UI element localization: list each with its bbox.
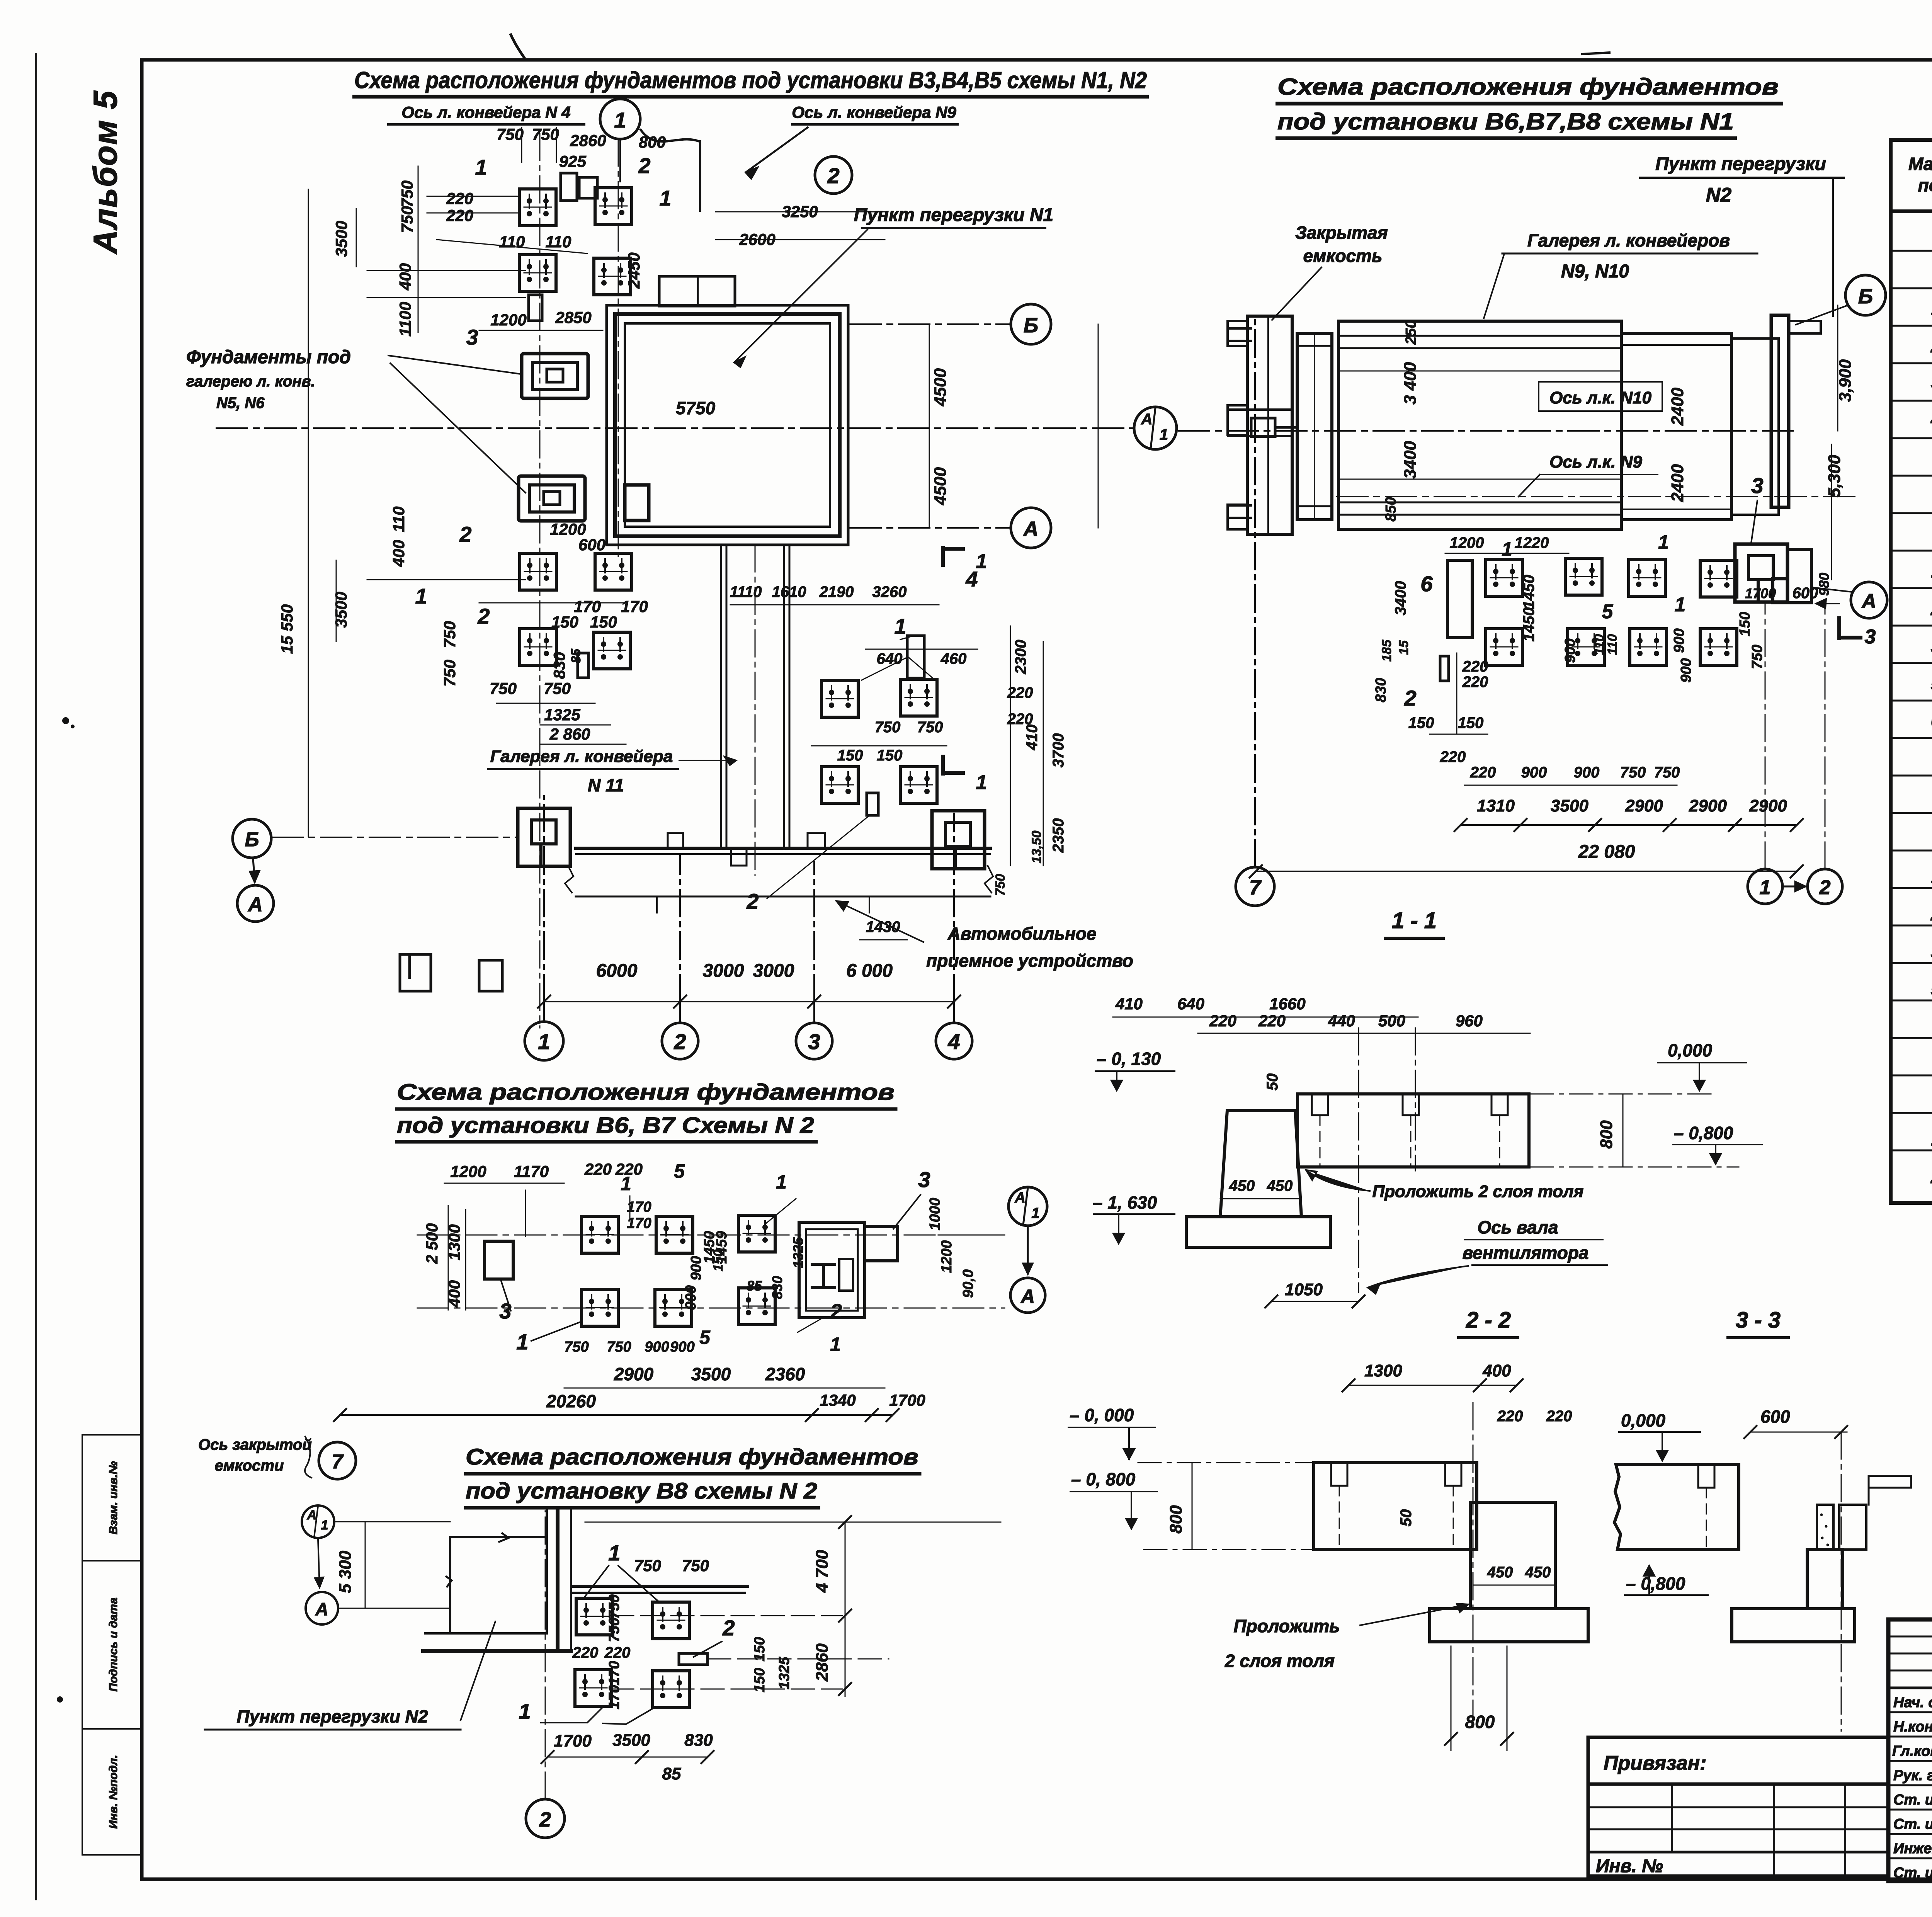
svg-text:2: 2 [539,1808,551,1831]
svg-text:поз.: поз. [1918,175,1932,195]
svg-text:450: 450 [1229,1177,1255,1194]
svg-text:750: 750 [993,874,1008,896]
svg-text:N5, N6: N5, N6 [216,395,265,412]
svg-text:1310: 1310 [1477,796,1515,815]
svg-text:750: 750 [532,125,559,143]
svg-text:1170: 1170 [514,1162,549,1180]
svg-text:6: 6 [1420,572,1433,596]
svg-text:1: 1 [1675,594,1686,616]
svg-text:640: 640 [1177,995,1204,1013]
svg-text:6 000: 6 000 [846,961,893,981]
svg-text:150: 150 [752,1637,768,1661]
svg-text:1700: 1700 [1745,585,1776,601]
svg-text:Инженер: Инженер [1893,1840,1932,1857]
svg-text:110: 110 [1605,634,1620,655]
svg-text:1: 1 [830,1334,841,1355]
svg-text:1325: 1325 [790,1237,806,1268]
svg-text:1050: 1050 [1285,1280,1323,1299]
svg-text:750: 750 [497,125,524,143]
svg-text:1: 1 [1760,876,1771,899]
svg-text:1: 1 [1931,299,1932,319]
svg-text:1660: 1660 [1269,995,1305,1013]
svg-text:Галерея л. конвейеров: Галерея л. конвейеров [1527,230,1730,250]
svg-text:85: 85 [662,1764,681,1783]
svg-text:Инв. №: Инв. № [1596,1856,1663,1876]
svg-text:110: 110 [389,507,408,532]
svg-text:– 0, 800: – 0, 800 [1071,1469,1136,1489]
svg-text:220: 220 [446,189,473,208]
svg-text:– 0, 000: – 0, 000 [1070,1405,1134,1425]
svg-text:750: 750 [917,719,943,736]
svg-text:5750: 5750 [676,398,716,418]
svg-text:3000: 3000 [753,961,794,981]
svg-text:1: 1 [1160,426,1168,443]
svg-text:170: 170 [627,1215,651,1232]
svg-text:– 0,800: – 0,800 [1674,1123,1733,1143]
svg-text:450: 450 [1267,1177,1293,1194]
svg-text:3,900: 3,900 [1836,359,1855,402]
svg-text:4: 4 [1930,410,1932,430]
svg-text:2400: 2400 [1668,464,1687,502]
svg-text:220: 220 [1497,1408,1523,1425]
svg-text:3000: 3000 [703,961,744,981]
svg-text:N 11: N 11 [588,775,624,795]
svg-text:1: 1 [608,1541,620,1565]
svg-text:3400: 3400 [1392,581,1409,616]
svg-text:2900: 2900 [1689,796,1727,815]
svg-text:Б: Б [245,828,259,851]
svg-text:А: А [1023,517,1039,541]
svg-text:750: 750 [606,1618,622,1642]
svg-text:Б: Б [1024,314,1038,337]
svg-text:830: 830 [1373,678,1389,702]
svg-text:185: 185 [1379,640,1394,662]
svg-text:900: 900 [1678,658,1694,682]
svg-text:220: 220 [1462,658,1488,675]
svg-text:1: 1 [1931,1129,1932,1150]
svg-text:1: 1 [621,1173,631,1194]
svg-text:900: 900 [683,1285,699,1310]
svg-text:2: 2 [827,163,839,188]
svg-text:1220: 1220 [1515,534,1549,551]
svg-text:Ось вала: Ось вала [1478,1217,1558,1237]
svg-text:А: А [307,1508,317,1522]
svg-text:110: 110 [499,233,525,251]
svg-text:5: 5 [699,1327,711,1348]
svg-text:150: 150 [1408,714,1434,731]
svg-text:1450: 1450 [1520,575,1537,609]
svg-text:900: 900 [1521,764,1547,781]
svg-text:3: 3 [466,325,478,349]
svg-text:2850: 2850 [555,308,591,327]
svg-text:2350: 2350 [1050,818,1067,853]
svg-text:Пункт перегрузки: Пункт перегрузки [1655,154,1826,174]
svg-text:13,50: 13,50 [1029,830,1044,863]
svg-text:А: А [1020,1286,1035,1307]
svg-text:Схема расположения фундаментов: Схема расположения фундаментов под устан… [354,67,1147,93]
svg-text:Пункт перегрузки N2: Пункт перегрузки N2 [237,1706,428,1726]
svg-text:750: 750 [544,679,571,697]
svg-text:2900: 2900 [1749,796,1787,815]
svg-text:3500: 3500 [1551,796,1588,815]
svg-text:3: 3 [808,1029,820,1054]
svg-text:2360: 2360 [765,1364,805,1384]
svg-text:440: 440 [1328,1012,1355,1030]
svg-text:Ст. инж.: Ст. инж. [1893,1792,1932,1808]
svg-text:5: 5 [1602,600,1614,623]
svg-text:1: 1 [475,155,487,179]
svg-text:1: 1 [519,1699,531,1723]
svg-text:800: 800 [1597,1120,1616,1149]
svg-text:А: А [1141,411,1153,428]
svg-text:Ось л. конвейера N 4: Ось л. конвейера N 4 [401,103,570,121]
svg-text:150: 150 [877,747,903,764]
svg-text:980: 980 [1816,573,1832,596]
svg-text:220: 220 [1440,748,1466,765]
svg-text:Ось закрытой: Ось закрытой [198,1436,312,1453]
svg-text:1100: 1100 [396,302,414,337]
svg-text:2 - 2: 2 - 2 [1466,1308,1511,1333]
svg-text:2: 2 [1930,336,1932,357]
svg-text:3: 3 [499,1299,511,1323]
svg-text:400: 400 [389,540,408,567]
svg-text:1325: 1325 [544,706,580,724]
svg-text:приемное устройство: приемное устройство [926,951,1133,971]
svg-text:емкость: емкость [1303,246,1383,266]
svg-text:2900: 2900 [1625,796,1663,815]
svg-text:220: 220 [1546,1408,1572,1425]
svg-text:220: 220 [604,1644,631,1661]
svg-text:1: 1 [776,1171,787,1193]
svg-text:900: 900 [645,1339,669,1355]
svg-text:Н.контр.: Н.контр. [1893,1719,1932,1735]
svg-text:А: А [315,1599,328,1619]
svg-text:1000: 1000 [927,1198,943,1231]
svg-text:2: 2 [1930,1167,1932,1187]
svg-text:1: 1 [894,614,906,638]
svg-text:1300: 1300 [1364,1361,1402,1380]
svg-text:3 400: 3 400 [1401,362,1420,405]
svg-text:500: 500 [1378,1012,1405,1030]
svg-text:Ст. инж.: Ст. инж. [1893,1865,1932,1881]
svg-text:3: 3 [1931,942,1932,962]
svg-text:2300: 2300 [1012,640,1029,675]
svg-text:3 - 3: 3 - 3 [1736,1308,1781,1333]
svg-text:3260: 3260 [872,583,907,600]
svg-text:925: 925 [559,152,587,170]
svg-text:вентилятора: вентилятора [1463,1243,1589,1263]
svg-text:А: А [1861,590,1876,612]
svg-text:Ось л.к. N10: Ось л.к. N10 [1549,388,1652,407]
svg-text:85: 85 [747,1278,762,1294]
svg-text:750: 750 [875,719,901,736]
svg-text:емкости: емкости [215,1457,284,1474]
svg-text:220: 220 [446,206,473,225]
svg-text:150: 150 [1737,612,1753,636]
svg-text:2860: 2860 [813,1643,832,1682]
svg-text:20260: 20260 [546,1391,596,1411]
svg-text:1: 1 [1658,531,1669,553]
svg-text:А: А [247,893,263,916]
svg-text:220: 220 [1209,1012,1236,1030]
svg-text:Проложить: Проложить [1234,1616,1340,1636]
svg-text:750: 750 [1620,764,1646,781]
svg-text:900: 900 [1562,638,1578,663]
svg-text:Б: Б [1858,285,1873,308]
svg-text:900: 900 [670,1339,694,1355]
svg-text:850: 850 [1383,497,1399,521]
svg-text:1: 1 [321,1518,328,1533]
svg-text:2: 2 [746,889,759,913]
svg-text:Закрытая: Закрытая [1295,223,1388,243]
svg-text:15 550: 15 550 [278,604,296,654]
svg-text:Нач. отд.: Нач. отд. [1893,1694,1932,1711]
svg-text:Рук. гр.: Рук. гр. [1893,1767,1932,1784]
svg-text:– 1, 630: – 1, 630 [1093,1192,1157,1213]
svg-text:2 860: 2 860 [549,725,590,743]
svg-text:2: 2 [673,1029,686,1054]
svg-text:5: 5 [674,1160,685,1182]
svg-text:220: 220 [1462,674,1488,691]
svg-text:2: 2 [1819,876,1831,899]
svg-text:0,000: 0,000 [1621,1410,1666,1431]
svg-text:2: 2 [459,522,471,546]
svg-text:1: 1 [1931,867,1932,887]
svg-text:3: 3 [1751,473,1763,498]
svg-text:15: 15 [1396,640,1411,655]
svg-text:1200: 1200 [490,311,526,329]
svg-text:А: А [1014,1190,1025,1206]
svg-text:3: 3 [1931,372,1932,393]
svg-text:800: 800 [1167,1505,1185,1534]
svg-text:1700: 1700 [889,1391,925,1409]
svg-text:4: 4 [947,1029,960,1054]
svg-text:Взам. инв.№: Взам. инв.№ [107,1461,120,1534]
svg-text:50: 50 [1264,1073,1281,1091]
svg-text:Схема расположения фундаментов: Схема расположения фундаментов [466,1444,918,1470]
svg-text:150: 150 [551,613,578,631]
svg-text:410: 410 [1115,995,1143,1013]
svg-text:750: 750 [398,180,416,208]
svg-text:1: 1 [614,108,626,132]
svg-text:2: 2 [1930,904,1932,925]
svg-text:250: 250 [1403,320,1419,345]
svg-text:750: 750 [490,679,517,697]
svg-text:1340: 1340 [820,1391,855,1409]
svg-text:220: 220 [572,1644,599,1661]
svg-text:2: 2 [1930,599,1932,619]
svg-text:1: 1 [1502,538,1512,560]
svg-text:6000: 6000 [596,961,638,981]
svg-text:170: 170 [606,1661,622,1685]
svg-text:150: 150 [837,747,863,764]
svg-text:Схема расположения фундаменто: Схема расположения фундаментов [1277,74,1779,100]
svg-text:750: 750 [1749,645,1765,669]
svg-text:3: 3 [1865,626,1876,648]
svg-text:600: 600 [578,536,605,554]
svg-text:110: 110 [1592,634,1607,655]
svg-text:2 500: 2 500 [423,1223,441,1264]
svg-text:85: 85 [569,648,583,663]
svg-text:7: 7 [1249,876,1262,899]
svg-text:3500: 3500 [332,221,350,257]
svg-text:Проложить 2 слоя толя: Проложить 2 слоя толя [1372,1182,1584,1201]
svg-text:Ст. инж.: Ст. инж. [1893,1816,1932,1832]
svg-text:1610: 1610 [772,583,806,600]
svg-text:750: 750 [634,1556,661,1575]
svg-text:3500: 3500 [612,1731,650,1750]
svg-text:2: 2 [1404,686,1416,710]
svg-text:90,0: 90,0 [960,1269,976,1298]
svg-text:Фундаменты под: Фундаменты под [186,347,351,367]
svg-text:2860: 2860 [570,131,606,150]
svg-text:830: 830 [684,1731,713,1750]
svg-text:2: 2 [638,153,650,178]
svg-text:750: 750 [1654,764,1680,781]
svg-text:450: 450 [1487,1564,1513,1581]
svg-text:Гл.констр.: Гл.констр. [1892,1743,1932,1759]
svg-text:410: 410 [1024,725,1041,751]
svg-text:0,000: 0,000 [1668,1040,1713,1060]
svg-text:5: 5 [1931,674,1932,694]
svg-text:800: 800 [639,133,666,151]
svg-text:1200: 1200 [450,1162,486,1180]
svg-text:170: 170 [627,1199,651,1215]
svg-text:Марка: Марка [1908,154,1932,174]
svg-text:под установку В8 схемы N 2: под установку В8 схемы N 2 [466,1478,817,1504]
svg-text:1: 1 [415,584,427,608]
svg-text:50: 50 [1398,1509,1415,1527]
svg-text:Ось л.к. N9: Ось л.к. N9 [1549,452,1642,471]
svg-text:1450: 1450 [1520,607,1537,642]
svg-text:Галерея л. конвейера: Галерея л. конвейера [490,747,673,766]
svg-text:750: 750 [440,660,459,687]
svg-text:400: 400 [1482,1361,1511,1380]
svg-text:2900: 2900 [614,1364,654,1384]
svg-text:1: 1 [659,186,671,210]
svg-text:3700: 3700 [1050,733,1067,768]
svg-text:750: 750 [398,206,416,233]
svg-text:под установки В6,В7,В8 схемы: под установки В6,В7,В8 схемы N1 [1277,109,1734,134]
svg-text:Ось л. конвейера N9: Ось л. конвейера N9 [792,103,956,121]
svg-text:750: 750 [607,1339,631,1355]
svg-text:450: 450 [1525,1564,1551,1581]
svg-text:Инв. №подл.: Инв. №подл. [107,1755,120,1829]
svg-text:2 слоя толя: 2 слоя толя [1225,1651,1335,1671]
svg-text:900: 900 [1671,628,1687,653]
svg-text:150: 150 [590,613,617,631]
svg-text:галерею л. конв.: галерею л. конв. [186,373,315,390]
svg-text:Альбом 5: Альбом 5 [87,90,124,255]
svg-text:4500: 4500 [931,467,950,505]
svg-text:1200: 1200 [939,1240,955,1273]
svg-text:220: 220 [1258,1012,1286,1030]
svg-text:750: 750 [564,1339,588,1355]
svg-text:960: 960 [1456,1012,1483,1030]
svg-text:1: 1 [538,1029,550,1054]
svg-text:4 700: 4 700 [813,1550,832,1593]
svg-text:750: 750 [682,1556,709,1575]
svg-text:2: 2 [830,1300,842,1323]
svg-text:7: 7 [332,1451,344,1473]
svg-text:Подпись и дата: Подпись и дата [107,1597,120,1691]
svg-text:3: 3 [918,1167,930,1192]
svg-text:Привязан:: Привязан: [1604,1752,1706,1774]
svg-text:4: 4 [965,567,978,591]
svg-text:220: 220 [1470,764,1496,781]
svg-text:750: 750 [440,621,459,648]
svg-text:2: 2 [722,1616,735,1640]
svg-text:22 080: 22 080 [1578,842,1635,862]
svg-text:3400: 3400 [1401,441,1420,479]
svg-text:1: 1 [516,1330,528,1354]
svg-text:830: 830 [769,1276,785,1299]
svg-text:900: 900 [1574,764,1600,781]
svg-text:5: 5 [1931,979,1932,1000]
svg-text:под установки В6, В7 Схемы N: под установки В6, В7 Схемы N 2 [397,1113,814,1138]
svg-text:N9, N10: N9, N10 [1561,261,1629,282]
svg-text:Автомобильное: Автомобильное [947,924,1097,944]
svg-text:2190: 2190 [819,583,854,600]
svg-text:1: 1 [1031,1205,1039,1221]
svg-text:1: 1 [1931,561,1932,582]
svg-text:150: 150 [711,1250,726,1272]
svg-text:– 0, 130: – 0, 130 [1097,1049,1161,1069]
svg-text:110: 110 [546,233,571,251]
svg-text:Пункт перегрузки N1: Пункт перегрузки N1 [854,205,1053,225]
svg-text:460: 460 [940,650,967,667]
svg-text:600: 600 [1760,1407,1790,1427]
svg-text:6: 6 [1931,711,1932,732]
svg-text:1200: 1200 [1450,534,1484,551]
svg-text:1: 1 [976,771,987,794]
svg-text:640: 640 [877,650,903,667]
svg-text:150: 150 [1458,714,1484,731]
svg-text:2: 2 [477,604,490,628]
svg-text:1430: 1430 [866,919,900,936]
svg-text:3500: 3500 [332,592,350,628]
svg-text:4500: 4500 [931,368,950,407]
svg-text:3: 3 [1931,636,1932,657]
svg-text:170: 170 [621,597,648,616]
svg-text:1 - 1: 1 - 1 [1392,908,1437,933]
svg-text:600: 600 [1793,585,1818,602]
svg-text:220: 220 [584,1160,612,1178]
svg-text:1325: 1325 [776,1657,793,1689]
svg-text:5,300: 5,300 [1825,454,1844,497]
svg-text:1700: 1700 [554,1732,592,1750]
svg-text:N2: N2 [1706,184,1732,206]
svg-text:3500: 3500 [691,1364,731,1384]
svg-text:1110: 1110 [730,583,762,600]
svg-text:Схема расположения фундаменто: Схема расположения фундаментов [397,1080,895,1105]
svg-text:5 300: 5 300 [336,1550,355,1593]
svg-text:830: 830 [550,652,568,679]
svg-text:400: 400 [396,263,414,291]
svg-text:2400: 2400 [1668,388,1687,426]
svg-text:800: 800 [1465,1712,1495,1732]
